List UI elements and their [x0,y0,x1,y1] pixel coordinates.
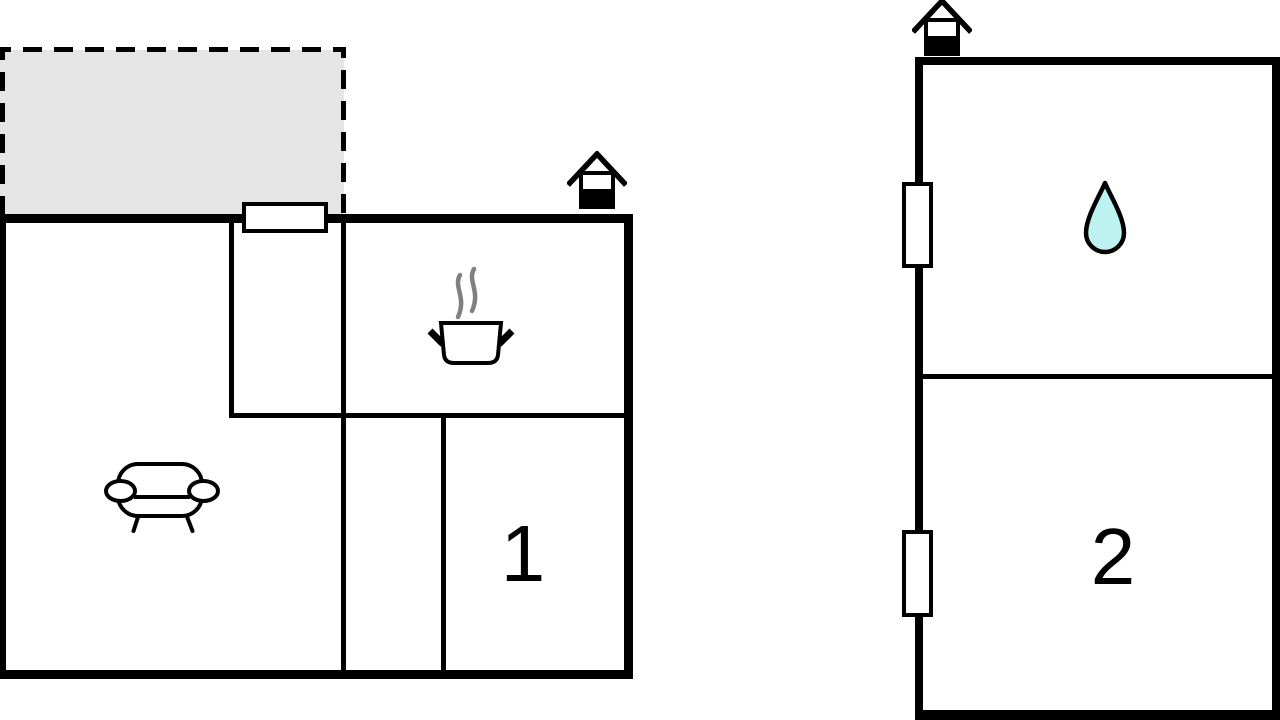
left-building-wall-left [0,214,6,679]
right-building-wall-left [915,57,923,720]
terrace-dashed-area [0,47,346,215]
sofa-icon [103,461,222,534]
sofa-armrest-left [106,481,135,501]
water-drop-shape [1086,183,1124,252]
terrace-fill [0,50,344,215]
house-body-base [924,36,960,56]
house-entrance-icon [912,0,972,56]
cooking-pot-icon [427,266,515,365]
left-building-wall-right [624,214,633,679]
hall-wall-left [229,223,234,413]
house-entrance-icon [567,151,627,209]
floor-plan: 1 2 [0,0,1280,720]
sofa-armrest-right [189,481,218,501]
right-building-wall-right [1272,57,1280,720]
right-building-wall-divider [923,374,1272,379]
right-building-wall-top [915,57,1280,65]
house-body-base [579,189,615,209]
window-lower [902,530,933,617]
steam-right [472,269,475,311]
pot-body [441,323,501,363]
right-building-wall-bottom [915,710,1280,720]
water-drop-icon [1082,180,1128,256]
window-upper [902,182,933,268]
middle-wall-horizontal [229,413,633,418]
entrance-door [242,202,328,233]
left-building-wall-bottom [0,670,633,679]
room1-label: 1 [473,514,573,594]
room1-wall-left [441,418,446,670]
steam-left [458,275,461,317]
center-wall-vertical [341,223,346,670]
room2-label: 2 [1063,517,1163,597]
